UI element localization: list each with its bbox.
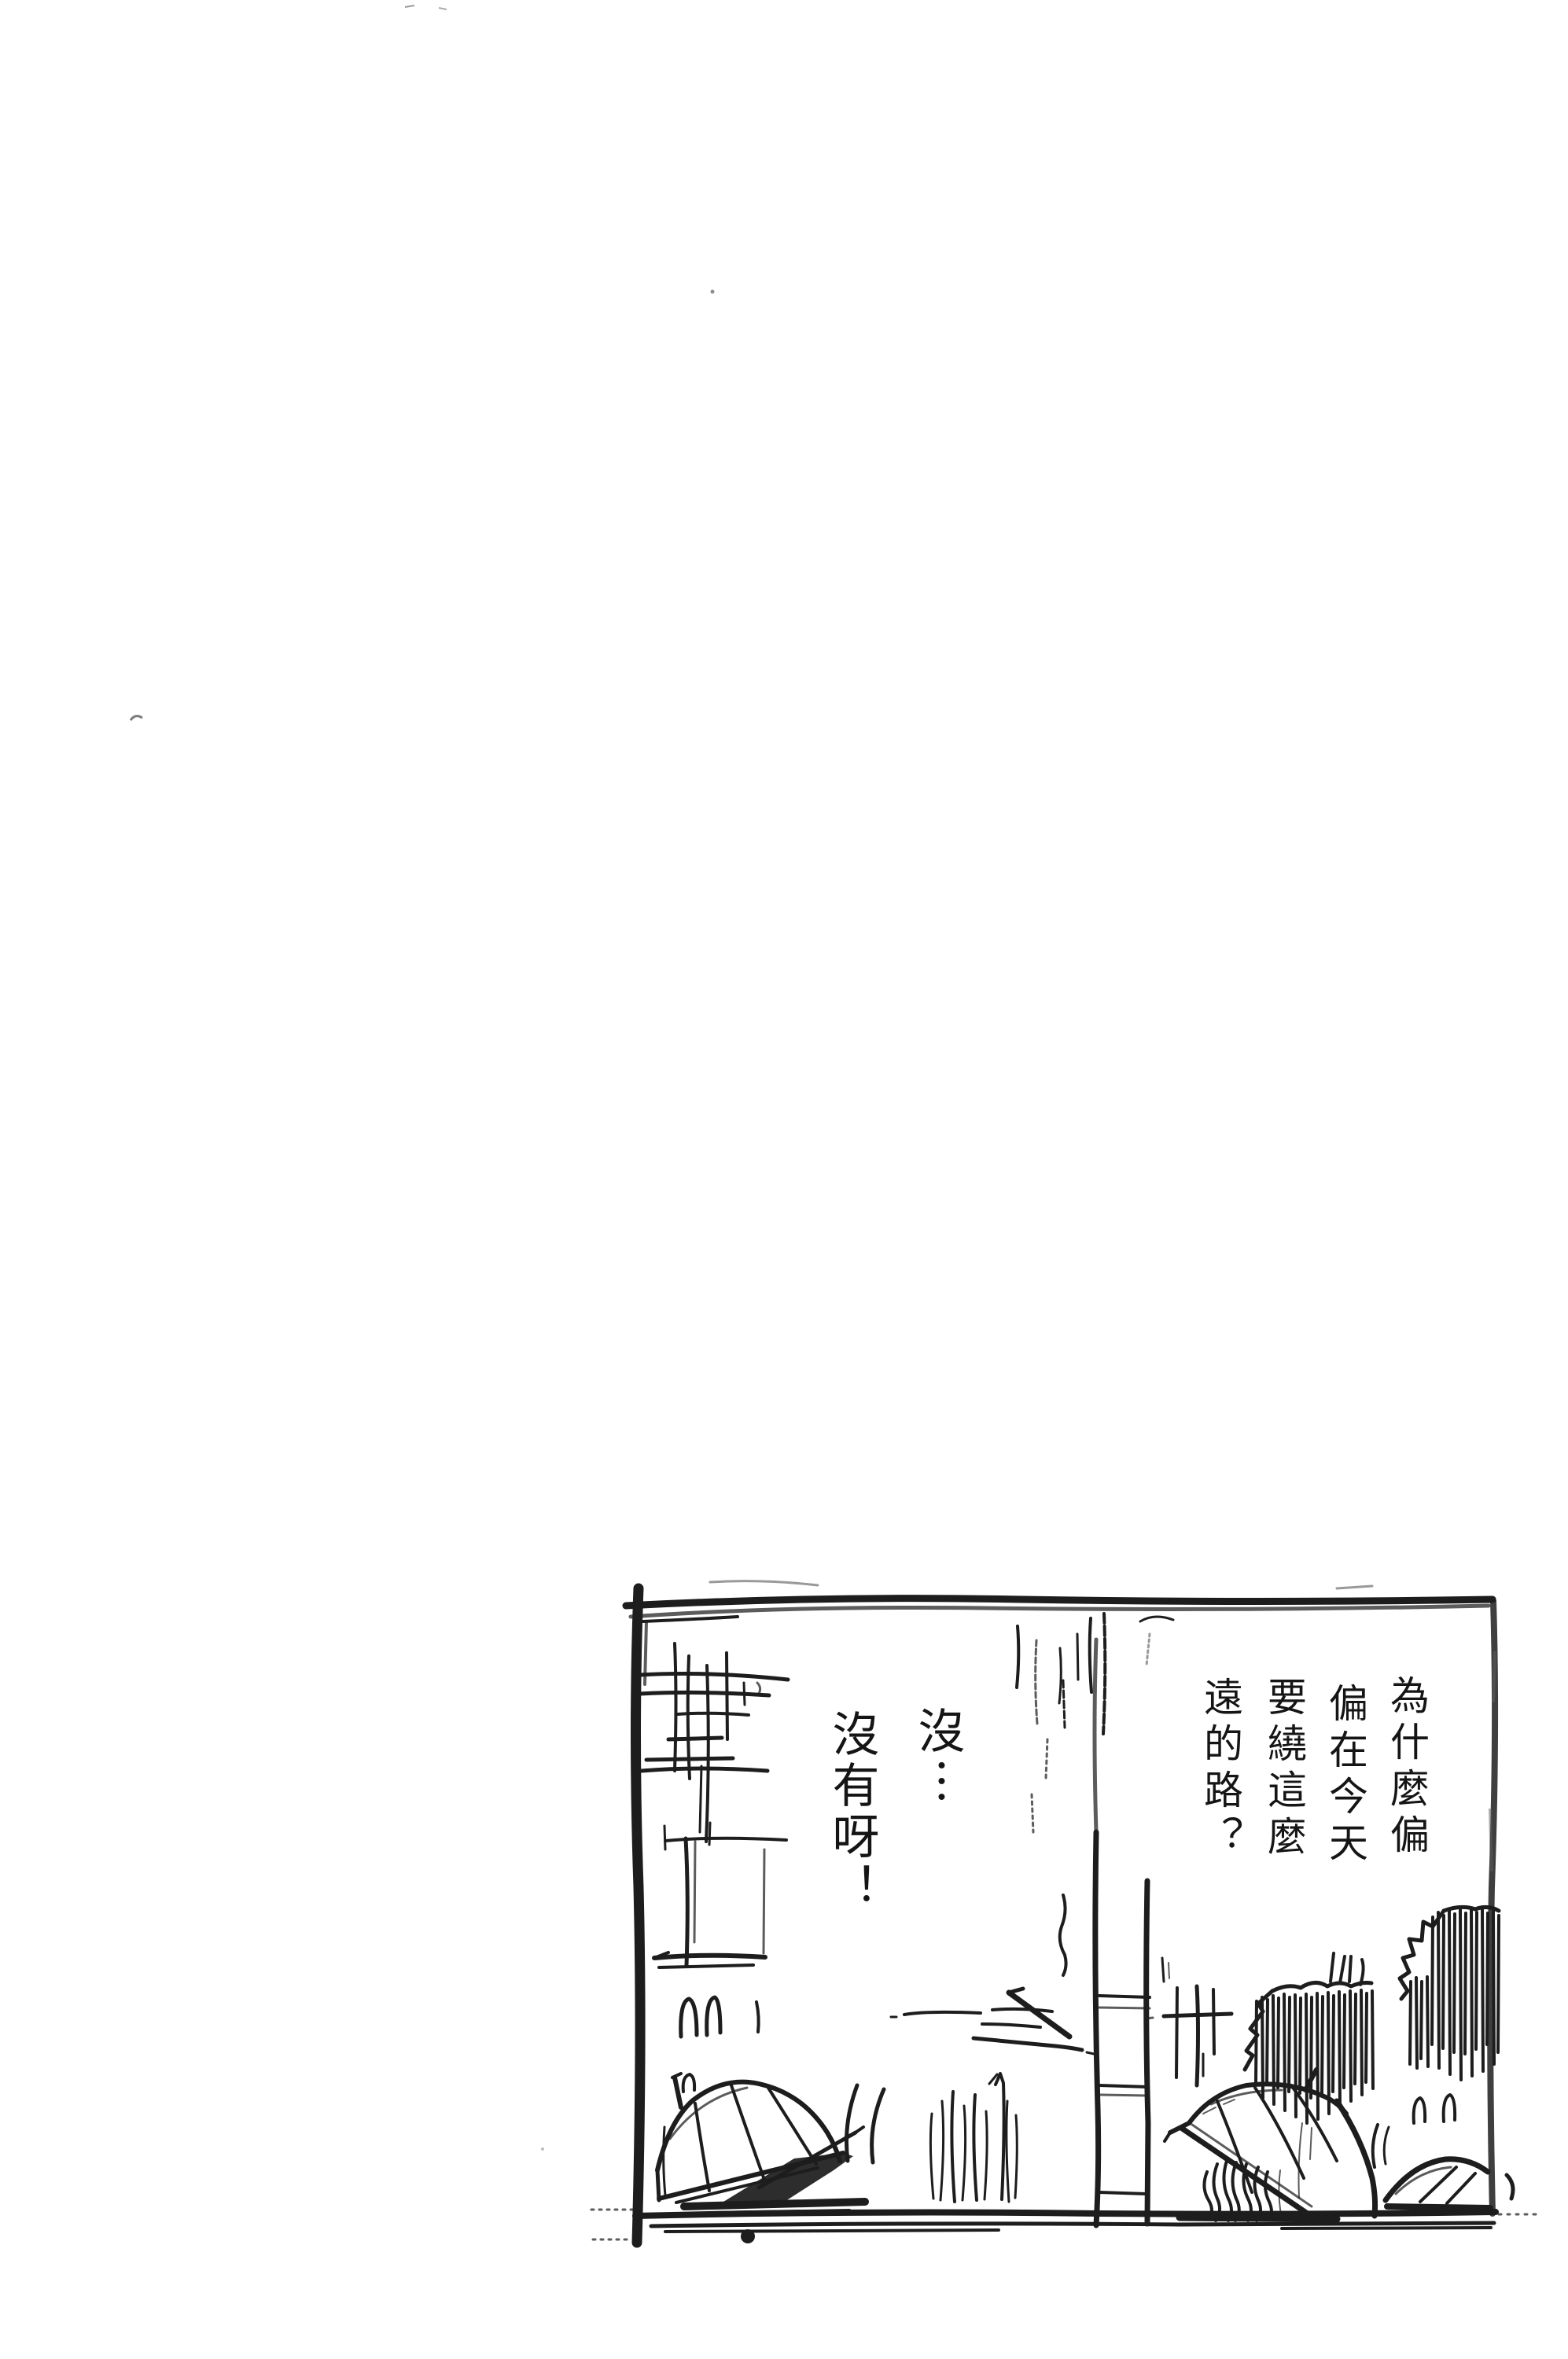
- umbrella-right-canopy: [1386, 2159, 1488, 2200]
- grass-tufts: [930, 2074, 1017, 2202]
- umbrella-left: [657, 2074, 863, 2208]
- panel-sketch: [0, 0, 1568, 2359]
- dialogue-left-col-2: 沒有呀！: [818, 1709, 886, 1914]
- dialogue-right-col-4: 遠的路？: [1192, 1676, 1249, 1862]
- crossarm-pole: [1146, 1986, 1231, 2085]
- dialogue-right-col-1: 為什麼偏: [1378, 1675, 1435, 1860]
- speed-lines: [891, 1989, 1094, 2054]
- dialogue-right-col-3: 要繞這麼: [1256, 1676, 1312, 1862]
- umbrella-left-ferrule: [675, 2077, 681, 2107]
- bush-right: [1400, 1907, 1499, 2080]
- umbrella-center-with-person: [1165, 2070, 1375, 2221]
- paper-specks: [131, 6, 715, 2151]
- ink-blob: [741, 2229, 755, 2243]
- dialogue-left-col-1: 沒︙: [904, 1706, 972, 1809]
- manga-page: 為什麼偏 偏在今天 要繞這麼 遠的路？ 沒︙ 沒有呀！: [0, 0, 1568, 2359]
- bush-center: [1245, 1953, 1373, 2198]
- dialogue-right-col-2: 偏在今天: [1317, 1683, 1374, 1868]
- utility-pole: [1060, 1640, 1169, 2225]
- building-sketch: [640, 1643, 788, 2092]
